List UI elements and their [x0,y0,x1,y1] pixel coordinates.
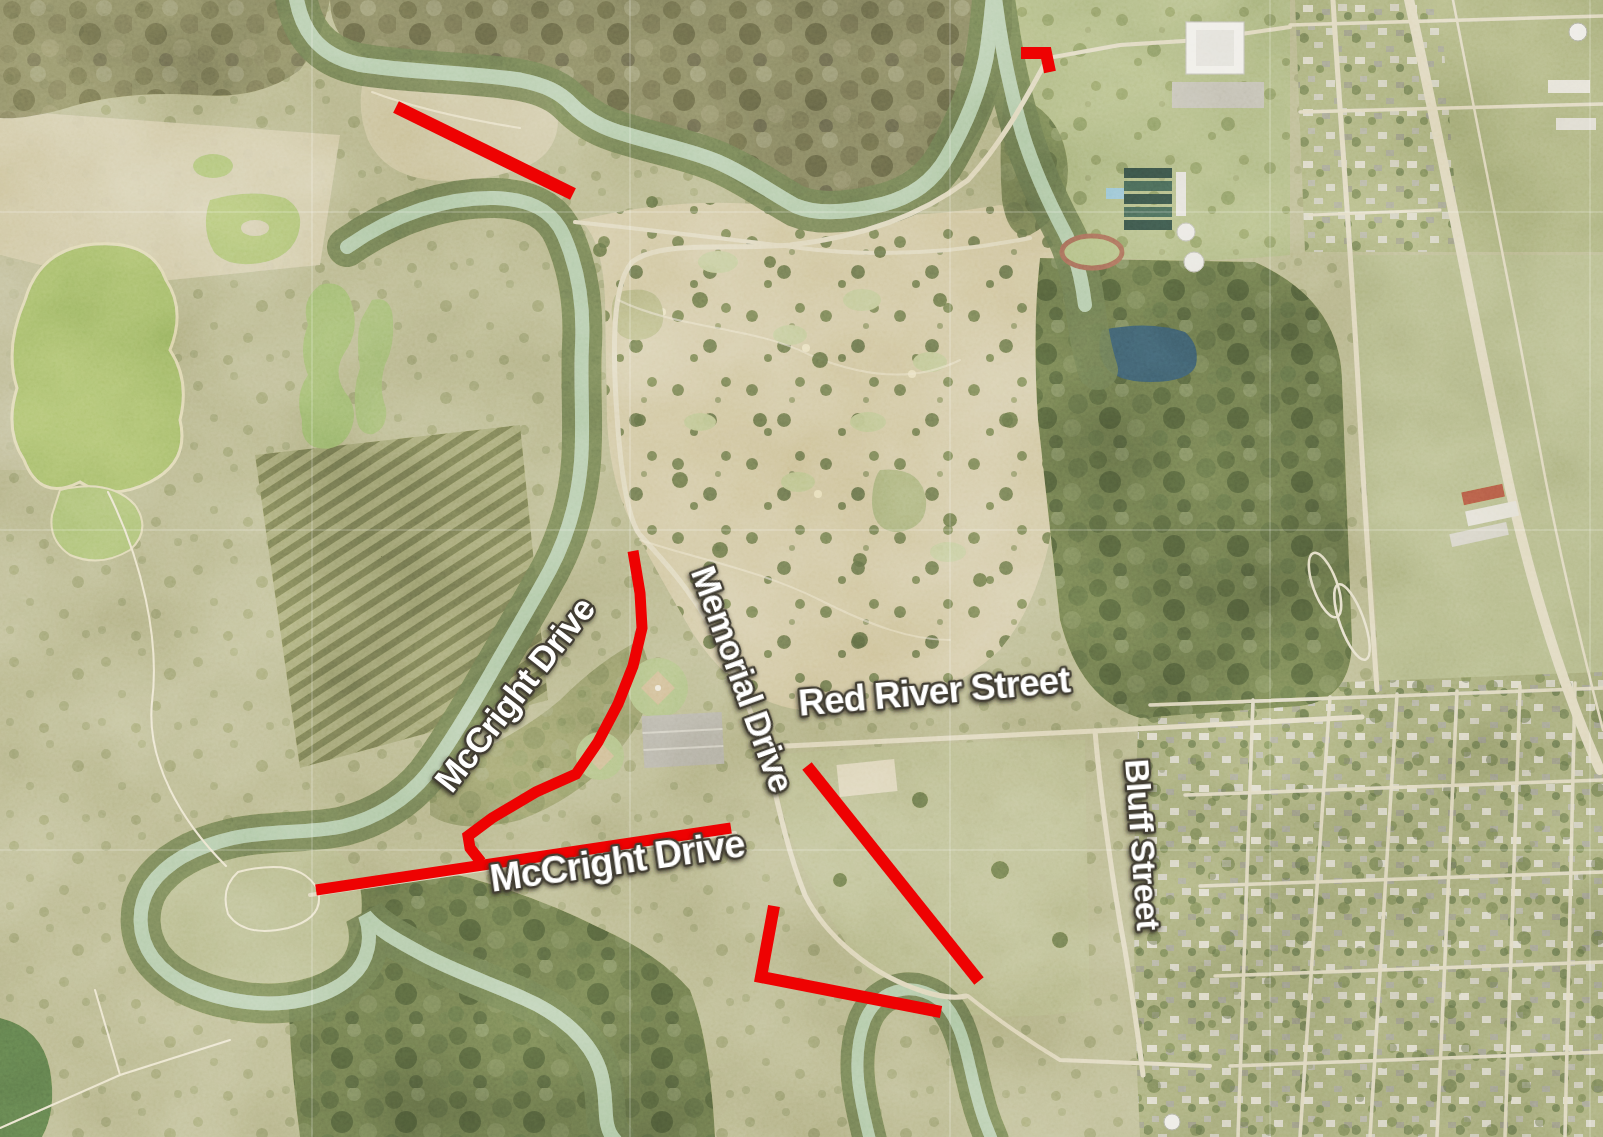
aerial-map: McCright Drive Memorial Drive Red River … [0,0,1603,1137]
aerial-photo: McCright Drive Memorial Drive Red River … [0,0,1603,1137]
terrain-layer [0,0,1603,1137]
